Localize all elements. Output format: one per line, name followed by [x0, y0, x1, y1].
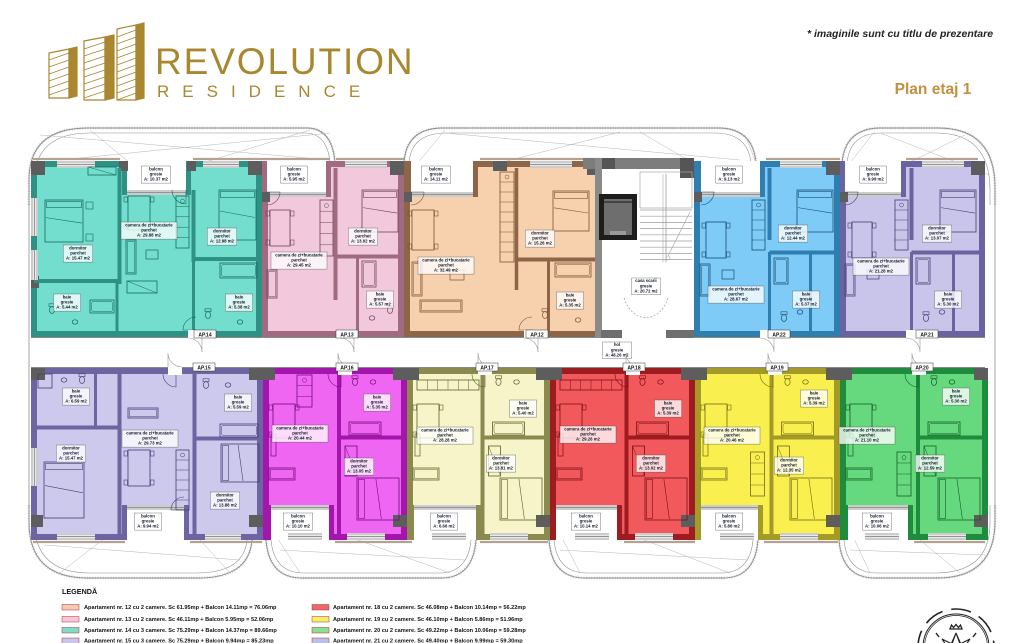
svg-text:A: 6.59 m2: A: 6.59 m2	[65, 399, 87, 404]
svg-text:* imaginile sunt cu titlu de p: * imaginile sunt cu titlu de prezentare	[807, 28, 993, 40]
svg-text:A: 21.28 m2: A: 21.28 m2	[869, 269, 893, 274]
svg-text:AP.13: AP.13	[340, 333, 353, 339]
svg-text:AP.16: AP.16	[340, 366, 353, 372]
svg-text:A: 13.88 m2: A: 13.88 m2	[213, 503, 237, 508]
svg-text:A: 5.38 m2: A: 5.38 m2	[228, 305, 250, 310]
svg-text:A: 9.94 m2: A: 9.94 m2	[137, 524, 159, 529]
svg-text:A: 5.57 m2: A: 5.57 m2	[369, 302, 391, 307]
svg-text:A: 12.35 m2: A: 12.35 m2	[777, 468, 801, 473]
svg-text:Apartament nr. 13 cu 2 camere.: Apartament nr. 13 cu 2 camere. Sc 46.11m…	[84, 617, 274, 623]
svg-text:A: 13.81 m2: A: 13.81 m2	[489, 466, 513, 471]
svg-text:A: 20.46 m2: A: 20.46 m2	[720, 438, 744, 443]
svg-text:A: 32.49 m2: A: 32.49 m2	[434, 268, 458, 273]
svg-text:A: 6.66 m2: A: 6.66 m2	[433, 524, 455, 529]
svg-text:Apartament nr. 21 cu 2 camere.: Apartament nr. 21 cu 2 camere. Sc 49.40m…	[333, 639, 523, 643]
svg-text:A: 15.26 m2: A: 15.26 m2	[528, 241, 552, 246]
svg-text:Apartament nr. 18 cu 2 camere.: Apartament nr. 18 cu 2 camere. Sc 46.08m…	[333, 605, 526, 611]
svg-text:A: 28.28 m2: A: 28.28 m2	[433, 438, 457, 443]
svg-text:A: 20.72 m2: A: 20.72 m2	[634, 288, 658, 293]
svg-text:A: 5.44 m2: A: 5.44 m2	[56, 305, 78, 310]
svg-text:A: 5.30 m2: A: 5.30 m2	[945, 399, 967, 404]
svg-text:LEGENDĂ: LEGENDĂ	[62, 587, 97, 596]
svg-text:A: 10.14 m2: A: 10.14 m2	[574, 524, 598, 529]
svg-text:A: 12.44 m2: A: 12.44 m2	[781, 236, 805, 241]
svg-text:A: 15.47 m2: A: 15.47 m2	[59, 456, 83, 461]
svg-text:AP.21: AP.21	[920, 333, 933, 339]
svg-text:A: 15.47 m2: A: 15.47 m2	[66, 256, 90, 261]
svg-text:Apartament nr. 20 cu 2 camere.: Apartament nr. 20 cu 2 camere. Sc 49.22m…	[333, 628, 526, 634]
svg-text:A: 5.40 m2: A: 5.40 m2	[512, 411, 534, 416]
svg-text:A: 13.02 m2: A: 13.02 m2	[639, 466, 663, 471]
svg-text:A: 10.06 m2: A: 10.06 m2	[865, 524, 889, 529]
svg-text:Apartament nr. 14 cu 3 camere.: Apartament nr. 14 cu 3 camere. Sc 75.29m…	[84, 628, 277, 634]
svg-text:AP.15: AP.15	[197, 366, 210, 372]
svg-text:AP.14: AP.14	[198, 333, 211, 339]
svg-text:A: 5.35 m2: A: 5.35 m2	[559, 303, 581, 308]
svg-text:A: 29.73 m2: A: 29.73 m2	[138, 441, 162, 446]
svg-text:A: 5.39 m2: A: 5.39 m2	[803, 401, 825, 406]
svg-text:A: 5.59 m2: A: 5.59 m2	[227, 405, 249, 410]
svg-text:A: 13.05 m2: A: 13.05 m2	[347, 469, 371, 474]
svg-text:AP.22: AP.22	[772, 333, 785, 339]
svg-text:A: 10.10 m2: A: 10.10 m2	[286, 524, 310, 529]
svg-text:A: 5.95 m2: A: 5.95 m2	[283, 177, 305, 182]
svg-text:AP.19: AP.19	[770, 366, 783, 372]
svg-text:A: 5.37 m2: A: 5.37 m2	[795, 302, 817, 307]
svg-text:A: 9.99 m2: A: 9.99 m2	[862, 177, 884, 182]
svg-text:REVOLUTION: REVOLUTION	[155, 41, 415, 82]
svg-text:A: 5.30 m2: A: 5.30 m2	[937, 302, 959, 307]
svg-text:RESIDENCE: RESIDENCE	[157, 82, 373, 101]
svg-text:A: 10.37 m2: A: 10.37 m2	[144, 177, 168, 182]
svg-text:A: 29.45 m2: A: 29.45 m2	[287, 263, 311, 268]
svg-text:A: 29.26 m2: A: 29.26 m2	[576, 437, 600, 442]
svg-text:AP.17: AP.17	[480, 366, 493, 372]
svg-text:Apartament nr. 19 cu 2 camere.: Apartament nr. 19 cu 2 camere. Sc 46.10m…	[333, 617, 523, 623]
svg-text:A: 5.39 m2: A: 5.39 m2	[657, 411, 679, 416]
svg-text:A: 21.10 m2: A: 21.10 m2	[855, 438, 879, 443]
svg-text:A: 12.98 m2: A: 12.98 m2	[210, 239, 234, 244]
svg-text:AP.12: AP.12	[530, 333, 543, 339]
svg-text:AP.18: AP.18	[627, 366, 640, 372]
svg-text:A: 5.35 m2: A: 5.35 m2	[366, 405, 388, 410]
svg-text:Apartament nr. 15 cu 3 camere.: Apartament nr. 15 cu 3 camere. Sc 75.29m…	[84, 639, 274, 643]
svg-text:A: 29.88 m2: A: 29.88 m2	[137, 233, 161, 238]
svg-text:A: 9.13 m2: A: 9.13 m2	[718, 177, 740, 182]
svg-text:A: 20.44 m2: A: 20.44 m2	[288, 436, 312, 441]
svg-text:A: 13.07 m2: A: 13.07 m2	[925, 236, 949, 241]
svg-text:A: 28.67 m2: A: 28.67 m2	[724, 297, 748, 302]
svg-text:A: 14.11 m2: A: 14.11 m2	[424, 177, 448, 182]
svg-text:Apartament nr. 12 cu 2 camere.: Apartament nr. 12 cu 2 camere. Sc 61.95m…	[84, 605, 277, 611]
svg-text:A: 12.59 m2: A: 12.59 m2	[918, 466, 942, 471]
svg-text:Plan etaj 1: Plan etaj 1	[895, 81, 972, 98]
svg-text:A: 13.02 m2: A: 13.02 m2	[351, 239, 375, 244]
svg-text:A: 5.86 m2: A: 5.86 m2	[718, 524, 740, 529]
svg-text:AP.20: AP.20	[915, 366, 928, 372]
